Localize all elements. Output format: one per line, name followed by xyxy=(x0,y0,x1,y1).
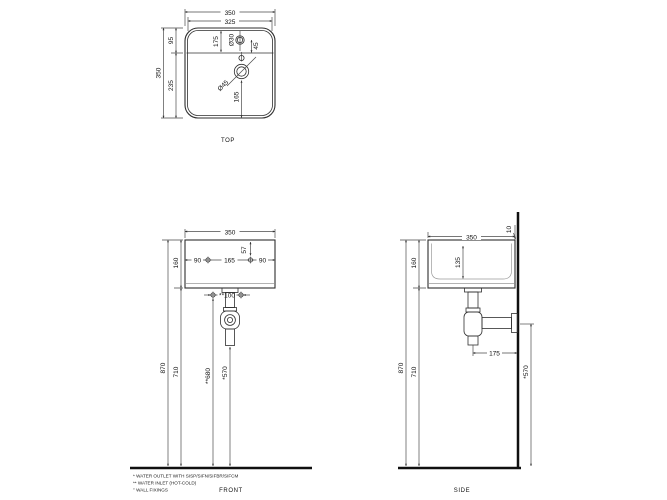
dim-tap-hole-gap: 45 xyxy=(253,42,260,50)
note-water-outlet: * WATER OUTLET WITH SISP/SIFN/SIFBR/SIFC… xyxy=(133,474,238,479)
dim-fixing-left: 90 xyxy=(194,258,202,265)
wall-fixing-symbol-right xyxy=(247,257,254,264)
dim-top-overall-depth: 350 xyxy=(156,67,163,78)
dim-top-front-section: 235 xyxy=(168,80,175,91)
trap-upper-pipe-side xyxy=(468,292,478,308)
dim-front-width: 350 xyxy=(225,230,236,237)
technical-drawing-canvas: 350 325 350 95 235 175 Ø30 45 Ø45 165 TO… xyxy=(0,0,667,500)
dim-bowl-depth: 135 xyxy=(455,257,462,268)
trap-collar-front xyxy=(224,308,237,312)
dim-front-outlet-height: *570 xyxy=(222,366,229,380)
note-water-inlet: ** WATER INLET (HOT-COLD) xyxy=(133,481,197,486)
dim-top-overall-width: 350 xyxy=(225,10,236,17)
wall-fixing-symbol-left xyxy=(205,257,212,264)
outlet-pipe-to-wall xyxy=(482,318,512,329)
front-view: 350 90 165 90 57 870 160 710 **100 xyxy=(130,228,312,494)
front-view-label: FRONT xyxy=(219,488,243,494)
trap-body-side xyxy=(464,312,482,336)
dim-front-underside-height: 710 xyxy=(173,366,180,377)
side-view-label: SIDE xyxy=(454,488,470,494)
note-wall-fixings: ° WALL FIXINGS xyxy=(133,488,168,493)
dim-fixing-center: 165 xyxy=(224,258,235,265)
trap-body-front xyxy=(221,311,240,329)
dim-side-depth: 350 xyxy=(466,235,477,242)
dim-waste-to-front: 165 xyxy=(234,91,241,102)
bottle-trap-side xyxy=(464,288,518,345)
side-view: 350 10 870 160 710 135 175 *570 xyxy=(398,212,534,494)
dim-inlet-spacing: **100 xyxy=(219,293,235,300)
trap-nut-outer xyxy=(225,315,236,326)
trap-lower-pipe-side xyxy=(468,336,478,345)
dim-tap-hole-dia: Ø30 xyxy=(229,33,236,46)
dim-inlet-height: **680 xyxy=(205,368,212,384)
dim-side-outlet-height: *570 xyxy=(523,365,530,379)
dim-side-height: 160 xyxy=(411,257,418,268)
dim-outlet-to-wall: 175 xyxy=(489,351,500,358)
dim-waste-hole-dia: Ø45 xyxy=(217,79,231,93)
dim-rear-gap: 10 xyxy=(506,226,513,234)
water-inlet-symbol-left xyxy=(210,292,217,299)
trap-collar-side xyxy=(466,308,480,312)
dim-front-rim-height: 870 xyxy=(160,362,167,373)
dim-front-height: 160 xyxy=(173,257,180,268)
dim-top-hole-offset: 175 xyxy=(213,36,220,47)
trap-lower-pipe-front xyxy=(226,329,235,346)
top-view: 350 325 350 95 235 175 Ø30 45 Ø45 165 TO… xyxy=(156,9,276,145)
dim-fixing-right: 90 xyxy=(259,258,267,265)
dim-top-inner-width: 325 xyxy=(225,19,236,26)
trap-nut-inner xyxy=(227,317,232,322)
dim-top-rear-section: 95 xyxy=(168,37,175,45)
dim-side-rim-height: 870 xyxy=(398,362,405,373)
dim-fixing-depth: 57 xyxy=(241,246,248,254)
dim-side-underside-height: 710 xyxy=(411,366,418,377)
wall-outlet-flange xyxy=(512,314,518,333)
waste-flange-side xyxy=(465,288,482,292)
water-inlet-symbol-right xyxy=(238,292,245,299)
basin-outline-side xyxy=(428,240,515,288)
bowl-inner-profile xyxy=(432,244,512,280)
basin-installation-drawing: 350 325 350 95 235 175 Ø30 45 Ø45 165 TO… xyxy=(0,0,667,500)
top-view-label: TOP xyxy=(221,138,235,144)
